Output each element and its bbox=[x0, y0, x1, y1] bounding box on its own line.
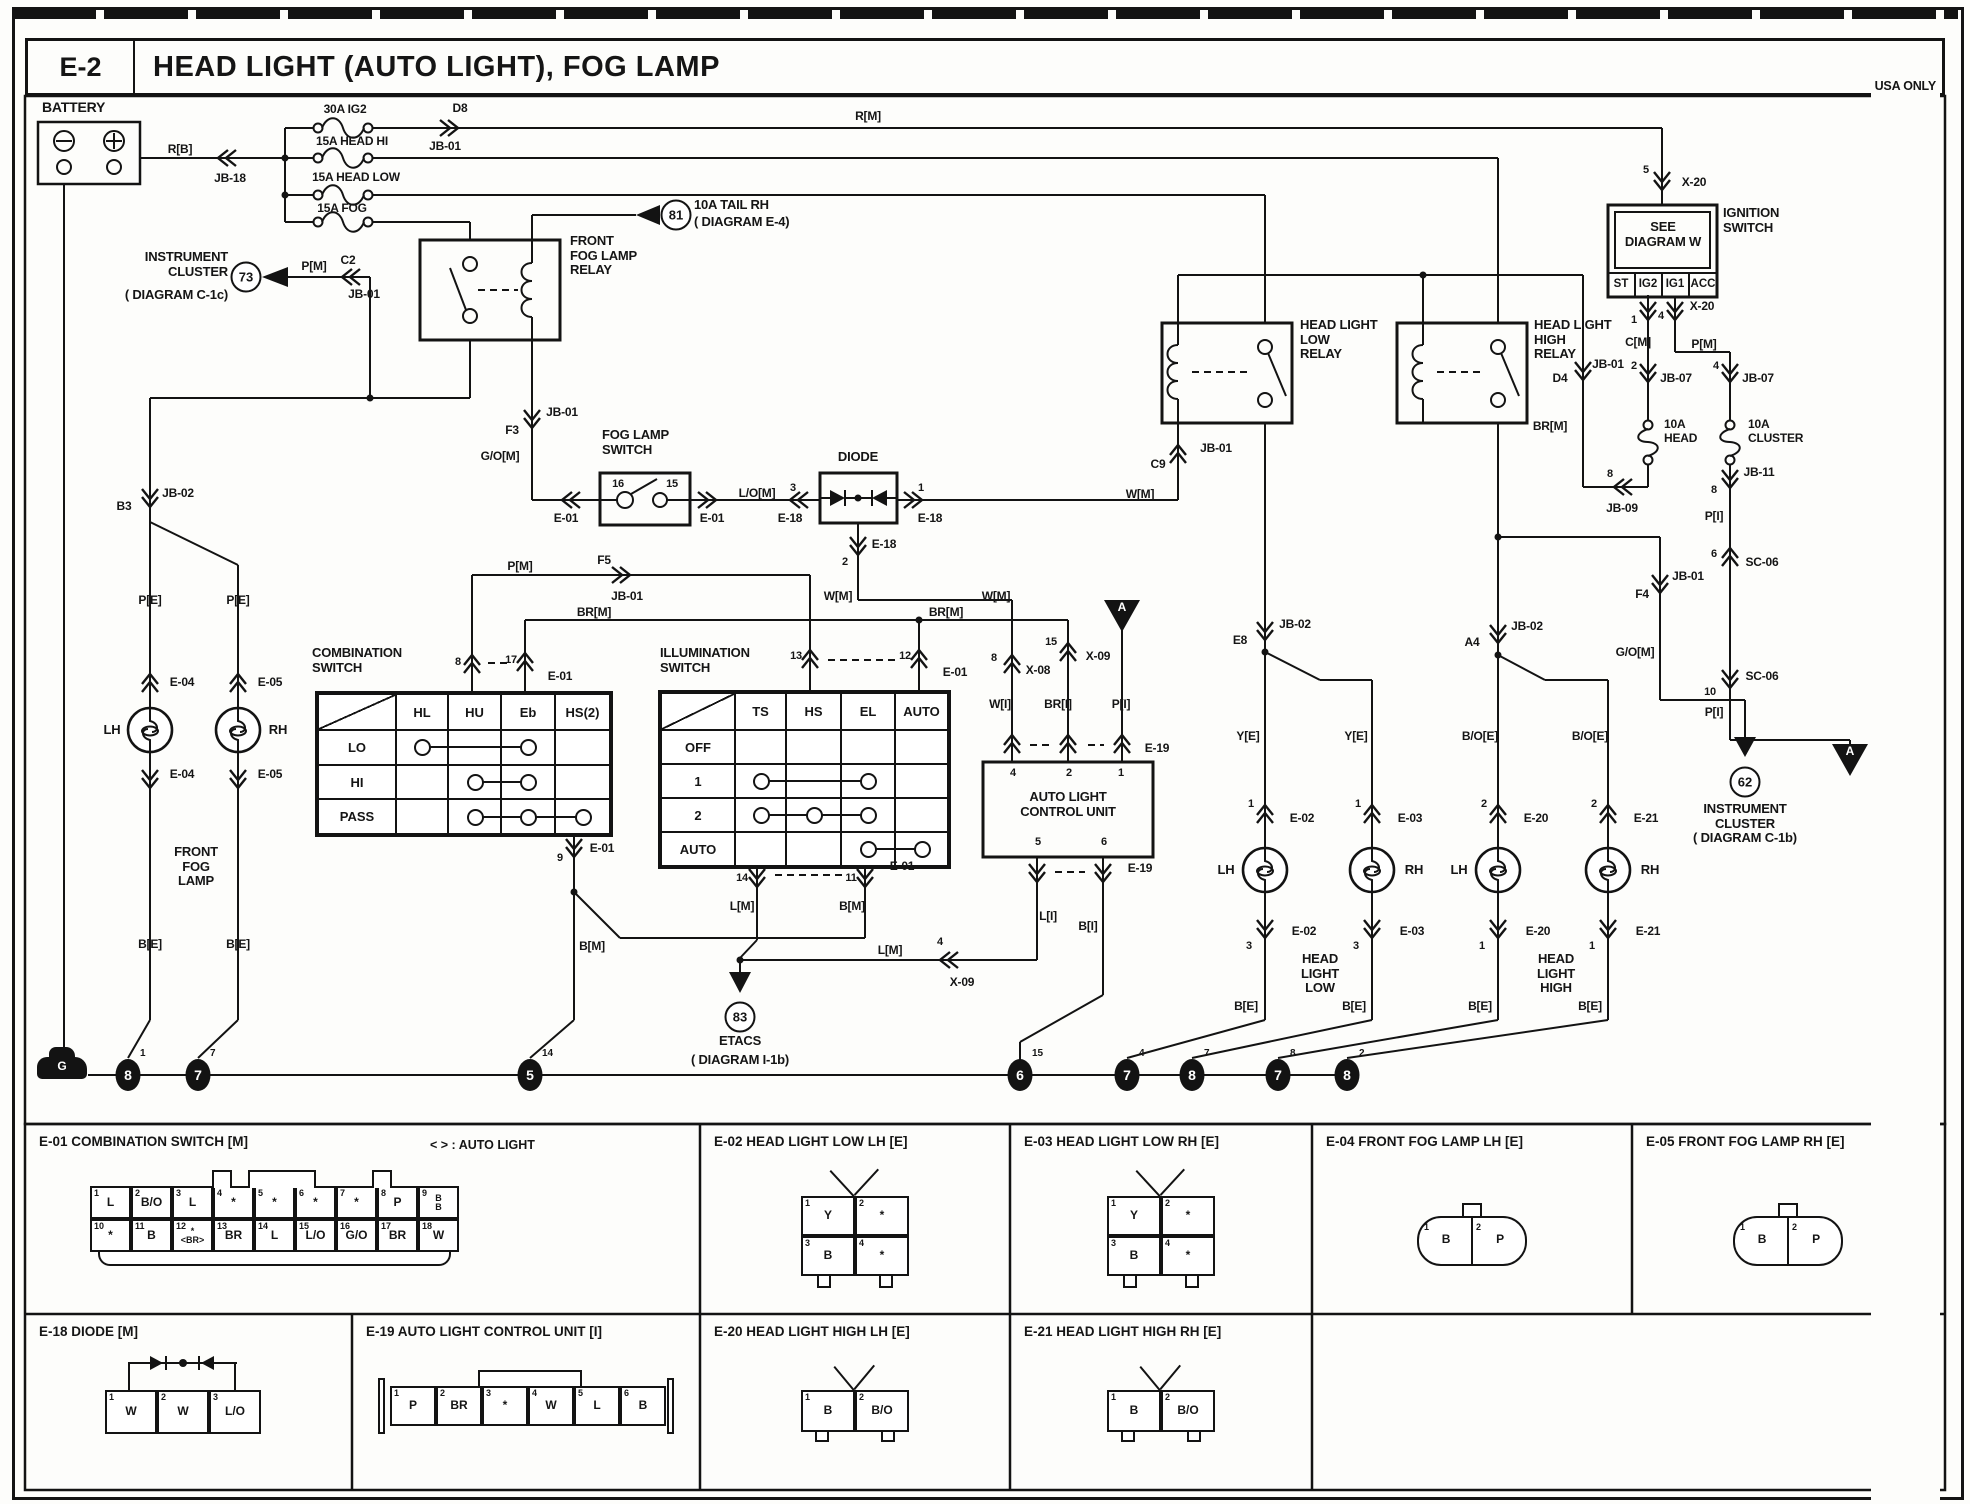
wire-label: 1 bbox=[1631, 314, 1637, 326]
pin-wire-color: W bbox=[420, 1221, 457, 1250]
ground-pin-number: 1 bbox=[140, 1048, 146, 1059]
wire-label: 1 bbox=[1118, 767, 1124, 779]
ground-node: 8 bbox=[1180, 1059, 1205, 1091]
connector-pin: 4* bbox=[213, 1186, 254, 1219]
wire-label: JB-01 bbox=[1672, 570, 1704, 584]
ground-node: 7 bbox=[186, 1059, 211, 1091]
wire-label: JB-07 bbox=[1660, 372, 1692, 386]
wire-label: 2 bbox=[842, 556, 848, 568]
wire-label: ( DIAGRAM E-4) bbox=[694, 215, 789, 230]
wire-label: LH bbox=[1451, 863, 1468, 878]
pin-wire-color: L bbox=[92, 1188, 129, 1217]
connector-pin: 1L bbox=[90, 1186, 131, 1219]
pin-wire-color: W bbox=[530, 1388, 572, 1424]
wire-label: E-02 bbox=[1290, 812, 1315, 826]
connector-pin: 18W bbox=[418, 1219, 459, 1252]
wire-label: JB-01 bbox=[429, 140, 461, 154]
wire-label: X-20 bbox=[1682, 176, 1707, 190]
pin-wire-color: * bbox=[484, 1388, 526, 1424]
wire-label: SC-06 bbox=[1745, 670, 1778, 684]
connector-panel-title: E-19 AUTO LIGHT CONTROL UNIT [I] bbox=[366, 1324, 602, 1339]
pin-number: 2 bbox=[1476, 1222, 1481, 1232]
wire-label: E-20 bbox=[1524, 812, 1549, 826]
wire-label: E-20 bbox=[1526, 925, 1551, 939]
wire-label: W[M] bbox=[982, 590, 1011, 604]
connector-bracket bbox=[378, 1378, 385, 1434]
wire-label: E-19 bbox=[1128, 862, 1153, 876]
wire-label: 2 bbox=[1631, 360, 1637, 372]
switch-table-cell bbox=[396, 730, 448, 765]
switch-table-cell: 2 bbox=[661, 798, 735, 832]
wire-label: B[E] bbox=[138, 938, 162, 952]
pin-number: 1 bbox=[1740, 1222, 1745, 1232]
wire-label: SEE DIAGRAM W bbox=[1625, 220, 1701, 249]
wire-label: INSTRUMENT CLUSTER ( DIAGRAM C-1b) bbox=[1693, 802, 1797, 846]
vehicle-ground-icon: G bbox=[37, 1057, 87, 1079]
wire-label: B[M] bbox=[839, 900, 865, 914]
wire-label: BR[M] bbox=[929, 606, 963, 620]
connector-pin: 6* bbox=[295, 1186, 336, 1219]
switch-table-cell bbox=[895, 798, 948, 832]
pin-number: 1 bbox=[1424, 1222, 1429, 1232]
ground-letter: G bbox=[37, 1059, 87, 1073]
switch-table-cell: PASS bbox=[318, 799, 396, 834]
pin-wire-color: P bbox=[379, 1188, 416, 1217]
connector-pin: 5* bbox=[254, 1186, 295, 1219]
diode-bar bbox=[198, 1356, 200, 1370]
pin-wire-color: B bbox=[622, 1388, 664, 1424]
wire-label: D8 bbox=[453, 102, 468, 116]
ground-pin-number: 4 bbox=[1139, 1048, 1145, 1059]
wire-label: C[M] bbox=[1625, 336, 1651, 350]
connector-panel-title: E-02 HEAD LIGHT LOW LH [E] bbox=[714, 1134, 908, 1149]
connector-pin: 4* bbox=[855, 1236, 909, 1276]
wire-label: B[E] bbox=[1468, 1000, 1492, 1014]
ground-node: 7 bbox=[1266, 1059, 1291, 1091]
connector-pin: 11B bbox=[131, 1219, 172, 1252]
pin-wire-color: W bbox=[107, 1392, 155, 1432]
wire-label: E-05 bbox=[258, 676, 283, 690]
switch-table-illum: TSHSELAUTOOFF12AUTO bbox=[658, 690, 951, 869]
switch-table-cell bbox=[841, 798, 895, 832]
wire-label: HEAD LIGHT HIGH bbox=[1537, 952, 1575, 996]
wire-label: E-02 bbox=[1292, 925, 1317, 939]
wire-label: LH bbox=[1218, 863, 1235, 878]
wire-label: RH bbox=[269, 723, 287, 738]
pin-wire-color: * bbox=[256, 1188, 293, 1217]
wire-label: BATTERY bbox=[42, 100, 105, 116]
connector-pin: 1Y bbox=[801, 1196, 855, 1236]
connector-pin: 2B/O bbox=[1161, 1390, 1215, 1432]
connector-pin: 16G/O bbox=[336, 1219, 377, 1252]
ignition-terminal: IG1 bbox=[1666, 278, 1685, 290]
wire-label: BR[M] bbox=[577, 606, 611, 620]
connector-pin: 3B bbox=[1107, 1236, 1161, 1276]
wire-label: 1 bbox=[1479, 940, 1485, 952]
wire-label: R[B] bbox=[168, 143, 193, 157]
wire-label: LH bbox=[104, 723, 121, 738]
connector-pin: 17BR bbox=[377, 1219, 418, 1252]
switch-table-cell: Eb bbox=[501, 694, 555, 730]
switch-table-cell bbox=[786, 832, 841, 866]
connector-tab bbox=[1123, 1276, 1137, 1288]
diode-icon bbox=[201, 1356, 214, 1370]
wire-label: E-04 bbox=[170, 676, 195, 690]
connector-divider bbox=[1787, 1216, 1789, 1266]
connector-pin: 8P bbox=[377, 1186, 418, 1219]
connector-pin: 3B bbox=[801, 1236, 855, 1276]
wire-label: 4 bbox=[1658, 310, 1664, 322]
wire-label: JB-01 bbox=[1200, 442, 1232, 456]
wire-label: FRONT FOG LAMP bbox=[174, 845, 218, 889]
wire-label: B[E] bbox=[1342, 1000, 1366, 1014]
switch-table-cell bbox=[841, 730, 895, 764]
wire-label: 17 bbox=[505, 654, 517, 666]
wire-label: E-04 bbox=[170, 768, 195, 782]
diode-bar bbox=[165, 1356, 167, 1370]
switch-table-cell bbox=[396, 765, 448, 800]
ignition-terminal: IG2 bbox=[1639, 278, 1658, 290]
switch-table-cell bbox=[555, 799, 610, 834]
connector-tab bbox=[478, 1370, 582, 1386]
wire-label: 4 bbox=[1713, 360, 1719, 372]
wire-label: 1 bbox=[1589, 940, 1595, 952]
wire-label: FOG LAMP SWITCH bbox=[602, 428, 669, 457]
wire-label: JB-07 bbox=[1742, 372, 1774, 386]
wire-label: B[E] bbox=[1234, 1000, 1258, 1014]
connector-panel-title: E-18 DIODE [M] bbox=[39, 1324, 138, 1339]
switch-table-cell bbox=[501, 799, 555, 834]
pin-wire-color: Y bbox=[803, 1198, 853, 1234]
wire-label: HEAD LIGHT LOW bbox=[1301, 952, 1339, 996]
wire-label: G/O[M] bbox=[481, 450, 520, 464]
switch-table-cell bbox=[735, 832, 786, 866]
switch-table-cell: LO bbox=[318, 730, 396, 765]
wire-label: HEAD LIGHT LOW RELAY bbox=[1300, 318, 1377, 362]
pin-wire-color: * bbox=[215, 1188, 252, 1217]
wire-label: P[M] bbox=[301, 260, 326, 274]
switch-table-cell: 1 bbox=[661, 764, 735, 798]
wire-label: B[E] bbox=[1578, 1000, 1602, 1014]
wire-label: SC-06 bbox=[1745, 556, 1778, 570]
wire-label: E-01 bbox=[890, 860, 915, 874]
diagram-title: HEAD LIGHT (AUTO LIGHT), FOG LAMP bbox=[135, 41, 1942, 93]
junction-dot bbox=[179, 1359, 187, 1367]
connector-tab bbox=[879, 1276, 893, 1288]
connector-tab bbox=[248, 1170, 316, 1188]
pin-wire-color: B/O bbox=[1163, 1392, 1213, 1430]
switch-table-cell: HI bbox=[318, 765, 396, 800]
connector-tab bbox=[815, 1432, 829, 1442]
wire-label: E-01 bbox=[590, 842, 615, 856]
wire-label: B[E] bbox=[226, 938, 250, 952]
pin-number: 2 bbox=[1792, 1222, 1797, 1232]
ground-pin-number: 14 bbox=[542, 1048, 553, 1059]
wire-label: P[I] bbox=[1705, 510, 1724, 524]
wire-label: JB-18 bbox=[214, 172, 246, 186]
switch-table-cell: TS bbox=[735, 693, 786, 730]
diode-icon bbox=[150, 1356, 163, 1370]
wire-label: 6 bbox=[1101, 836, 1107, 848]
pin-wire-color: G/O bbox=[338, 1221, 375, 1250]
wire-label: L/O[M] bbox=[739, 487, 776, 501]
wire-label: 1 bbox=[1248, 798, 1254, 810]
connector-tab bbox=[817, 1276, 831, 1288]
wire-label: 30A IG2 bbox=[324, 103, 367, 117]
wire-label: 1 bbox=[1355, 798, 1361, 810]
circle-reference: 62 bbox=[1730, 767, 1761, 798]
pin-wire-color: P bbox=[1812, 1233, 1820, 1247]
wire-label: G/O[M] bbox=[1616, 646, 1655, 660]
wire-label: E-03 bbox=[1400, 925, 1425, 939]
wire-label: 4 bbox=[1010, 767, 1016, 779]
wire-label: Y[E] bbox=[1344, 730, 1367, 744]
connector-panel-title: E-04 FRONT FOG LAMP LH [E] bbox=[1326, 1134, 1523, 1149]
connector-pin: 3L bbox=[172, 1186, 213, 1219]
wire-label: 16 bbox=[612, 478, 624, 490]
pin-wire-color: L bbox=[576, 1388, 618, 1424]
switch-table-cell: AUTO bbox=[661, 832, 735, 866]
wire-label: DIODE bbox=[838, 450, 878, 465]
pin-wire-color: B bbox=[803, 1238, 853, 1274]
wire-label: W[M] bbox=[1126, 488, 1155, 502]
wire-label: ILLUMINATION SWITCH bbox=[660, 646, 750, 675]
wire-label: 5 bbox=[1035, 836, 1041, 848]
pin-wire-color: Y bbox=[1109, 1198, 1159, 1234]
connector-pin: 2B/O bbox=[855, 1390, 909, 1432]
wire-label: P[I] bbox=[1705, 706, 1724, 720]
wire-label: RH bbox=[1405, 863, 1423, 878]
wire-label: E-01 bbox=[554, 512, 579, 526]
connector-tab bbox=[1121, 1432, 1135, 1442]
pin-wire-color: BR bbox=[215, 1221, 252, 1250]
connector-pin: 14L bbox=[254, 1219, 295, 1252]
wire-label: E-01 bbox=[548, 670, 573, 684]
pin-wire-color: B/O bbox=[133, 1188, 170, 1217]
switch-table-cell bbox=[786, 798, 841, 832]
wire-label: E8 bbox=[1233, 634, 1247, 648]
connector-pin: 4W bbox=[528, 1386, 574, 1426]
wire-label: L[M] bbox=[878, 944, 903, 958]
wire-label: L[M] bbox=[730, 900, 755, 914]
pin-wire-color: * bbox=[92, 1221, 129, 1250]
wire-label: 15A HEAD HI bbox=[316, 135, 388, 149]
ground-node: 7 bbox=[1115, 1059, 1140, 1091]
connector-pin: 1B bbox=[801, 1390, 855, 1432]
diagram-code: E-2 bbox=[28, 41, 135, 93]
switch-table-cell: HS bbox=[786, 693, 841, 730]
switch-table-cell: HS(2) bbox=[555, 694, 610, 730]
connector-pin: 2B/O bbox=[131, 1186, 172, 1219]
wire-label: JB-02 bbox=[1279, 618, 1311, 632]
connector-tab bbox=[1187, 1432, 1201, 1442]
wire-label: ( DIAGRAM I-1b) bbox=[691, 1053, 789, 1068]
wire-label: 10A HEAD bbox=[1664, 418, 1697, 445]
pin-wire-color: P bbox=[392, 1388, 434, 1424]
connector-pin: 6B bbox=[620, 1386, 666, 1426]
connector-line bbox=[234, 1362, 236, 1390]
ground-pin-number: 7 bbox=[210, 1048, 216, 1059]
pin-wire-color: * bbox=[297, 1188, 334, 1217]
connector-pin: 9B B bbox=[418, 1186, 459, 1219]
pin-wire-color: * bbox=[857, 1198, 907, 1234]
wire-label: BR[M] bbox=[1533, 420, 1567, 434]
switch-table-cell: HU bbox=[448, 694, 501, 730]
ignition-terminal: ACC bbox=[1691, 278, 1716, 290]
wire-label: B/O[E] bbox=[1462, 730, 1498, 744]
switch-table-cell bbox=[786, 764, 841, 798]
connector-pin: 7* bbox=[336, 1186, 377, 1219]
switch-table-cell bbox=[735, 730, 786, 764]
pin-wire-color: B bbox=[1442, 1233, 1450, 1247]
switch-table-cell bbox=[555, 730, 610, 765]
switch-table-cell bbox=[501, 765, 555, 800]
pin-wire-color: * bbox=[857, 1238, 907, 1274]
connector-pin: 13BR bbox=[213, 1219, 254, 1252]
wire-label: W[I] bbox=[989, 698, 1011, 712]
switch-table-cell bbox=[448, 799, 501, 834]
connector-pin: 1W bbox=[105, 1390, 157, 1434]
ground-pin-number: 8 bbox=[1290, 1048, 1296, 1059]
connector-panel-note: < > : AUTO LIGHT bbox=[430, 1138, 535, 1152]
wire-label: E-03 bbox=[1398, 812, 1423, 826]
wire-label: E-05 bbox=[258, 768, 283, 782]
wire-label: B[I] bbox=[1078, 920, 1097, 934]
connector-pin: 12* <BR> bbox=[172, 1219, 213, 1252]
wire-label: 2 bbox=[1481, 798, 1487, 810]
region-note: USA ONLY bbox=[1871, 79, 1940, 1504]
connector-panel-title: E-21 HEAD LIGHT HIGH RH [E] bbox=[1024, 1324, 1221, 1339]
wire-label: 15A HEAD LOW bbox=[312, 171, 400, 185]
connector-divider bbox=[1471, 1216, 1473, 1266]
ground-pin-number: 15 bbox=[1032, 1048, 1043, 1059]
wire-label: 13 bbox=[790, 650, 802, 662]
circle-reference: 81 bbox=[661, 200, 692, 231]
connector-bracket bbox=[667, 1378, 674, 1434]
connector-pin: 3* bbox=[482, 1386, 528, 1426]
wire-label: W[M] bbox=[824, 590, 853, 604]
connector-tab bbox=[881, 1432, 895, 1442]
wire-label: JB-09 bbox=[1606, 502, 1638, 516]
pin-wire-color: B B bbox=[420, 1188, 457, 1217]
wire-label: 11 bbox=[845, 872, 856, 884]
wire-label: 4 bbox=[937, 936, 943, 948]
wire-label: P[M] bbox=[1691, 338, 1716, 352]
connector-pin: 1P bbox=[390, 1386, 436, 1426]
connector-pin: 1B bbox=[1107, 1390, 1161, 1432]
switch-table-cell bbox=[895, 730, 948, 764]
wire-label: FRONT FOG LAMP RELAY bbox=[570, 234, 637, 278]
pin-wire-color: B bbox=[1109, 1238, 1159, 1274]
connector-pin: 15L/O bbox=[295, 1219, 336, 1252]
connector-pin: 2* bbox=[855, 1196, 909, 1236]
connector-pin: 2W bbox=[157, 1390, 209, 1434]
pin-wire-color: BR bbox=[438, 1388, 480, 1424]
wire-label: E-18 bbox=[872, 538, 897, 552]
ground-pin-number: 7 bbox=[1204, 1048, 1210, 1059]
wire-label: JB-01 bbox=[348, 288, 380, 302]
wire-label: IGNITION SWITCH bbox=[1723, 206, 1779, 235]
wire-label: COMBINATION SWITCH bbox=[312, 646, 402, 675]
wire-label: F3 bbox=[505, 424, 519, 438]
switch-table-cell bbox=[555, 765, 610, 800]
switch-table-cell bbox=[448, 730, 501, 765]
pin-wire-color: * bbox=[1163, 1238, 1213, 1274]
pin-wire-color: * <BR> bbox=[174, 1221, 211, 1250]
wire-label: 15A FOG bbox=[317, 202, 367, 216]
wire-label: JB-01 bbox=[546, 406, 578, 420]
switch-table-comb: HLHUEbHS(2)LOHIPASS bbox=[315, 691, 613, 837]
connector-tab bbox=[1462, 1203, 1482, 1216]
wire-label: INSTRUMENT CLUSTER bbox=[145, 250, 228, 279]
wire-label: 14 bbox=[736, 872, 748, 884]
wire-label: JB-01 bbox=[1592, 358, 1624, 372]
wire-label: JB-11 bbox=[1743, 466, 1774, 480]
wire-label: JB-01 bbox=[611, 590, 643, 604]
pin-wire-color: L bbox=[256, 1221, 293, 1250]
wire-label: 2 bbox=[1591, 798, 1597, 810]
connector-pin: 4* bbox=[1161, 1236, 1215, 1276]
switch-table-cell bbox=[841, 832, 895, 866]
wire-label: 3 bbox=[790, 482, 796, 494]
wire-label: 3 bbox=[1246, 940, 1252, 952]
wiring-diagram-page: E-2 HEAD LIGHT (AUTO LIGHT), FOG LAMP US… bbox=[0, 0, 1970, 1504]
wire-label: P[M] bbox=[507, 560, 532, 574]
wire-label: B/O[E] bbox=[1572, 730, 1608, 744]
wire-label: E-01 bbox=[943, 666, 968, 680]
wire-label: 15 bbox=[666, 478, 678, 490]
connector-panel-title: E-03 HEAD LIGHT LOW RH [E] bbox=[1024, 1134, 1219, 1149]
wire-label: F4 bbox=[1635, 588, 1649, 602]
wire-label: RH bbox=[1641, 863, 1659, 878]
connector-panel-title: E-20 HEAD LIGHT HIGH LH [E] bbox=[714, 1324, 910, 1339]
wire-label: 5 bbox=[1643, 164, 1649, 176]
wire-label: E-18 bbox=[778, 512, 803, 526]
connector-pin: 1Y bbox=[1107, 1196, 1161, 1236]
wire-label: 10 bbox=[1704, 686, 1716, 698]
wire-label: X-09 bbox=[950, 976, 975, 990]
wire-label: 10A TAIL RH bbox=[694, 198, 769, 213]
wire-label: E-21 bbox=[1636, 925, 1661, 939]
connector-panel-title: E-01 COMBINATION SWITCH [M] bbox=[39, 1134, 248, 1149]
switch-table-cell bbox=[501, 730, 555, 765]
pin-wire-color: B bbox=[1109, 1392, 1159, 1430]
title-bar: E-2 HEAD LIGHT (AUTO LIGHT), FOG LAMP bbox=[25, 38, 1945, 96]
switch-table-cell: AUTO bbox=[895, 693, 948, 730]
wire-label: 10A CLUSTER bbox=[1748, 418, 1803, 445]
wire-label: ETACS bbox=[719, 1034, 761, 1049]
wire-label: 8 bbox=[1711, 484, 1717, 496]
connector-pin: 5L bbox=[574, 1386, 620, 1426]
connector-pin: 2* bbox=[1161, 1196, 1215, 1236]
wire-label: Y[E] bbox=[1236, 730, 1259, 744]
ground-node: 8 bbox=[1335, 1059, 1360, 1091]
wire-label: C2 bbox=[341, 254, 356, 268]
ground-pin-number: 2 bbox=[1359, 1048, 1365, 1059]
circle-reference: 83 bbox=[725, 1002, 756, 1033]
wire-label: P[E] bbox=[226, 594, 249, 608]
wire-label: HEAD LIGHT HIGH RELAY bbox=[1534, 318, 1611, 362]
switch-table-cell bbox=[841, 764, 895, 798]
switch-table-cell bbox=[396, 799, 448, 834]
pin-wire-color: BR bbox=[379, 1221, 416, 1250]
wire-label: P[I] bbox=[1112, 698, 1131, 712]
wire-label: L[I] bbox=[1039, 910, 1057, 924]
connector-tab bbox=[1778, 1203, 1798, 1216]
connector-pin: 2BR bbox=[436, 1386, 482, 1426]
wire-label: B[M] bbox=[579, 940, 605, 954]
connector-flange bbox=[98, 1252, 451, 1266]
